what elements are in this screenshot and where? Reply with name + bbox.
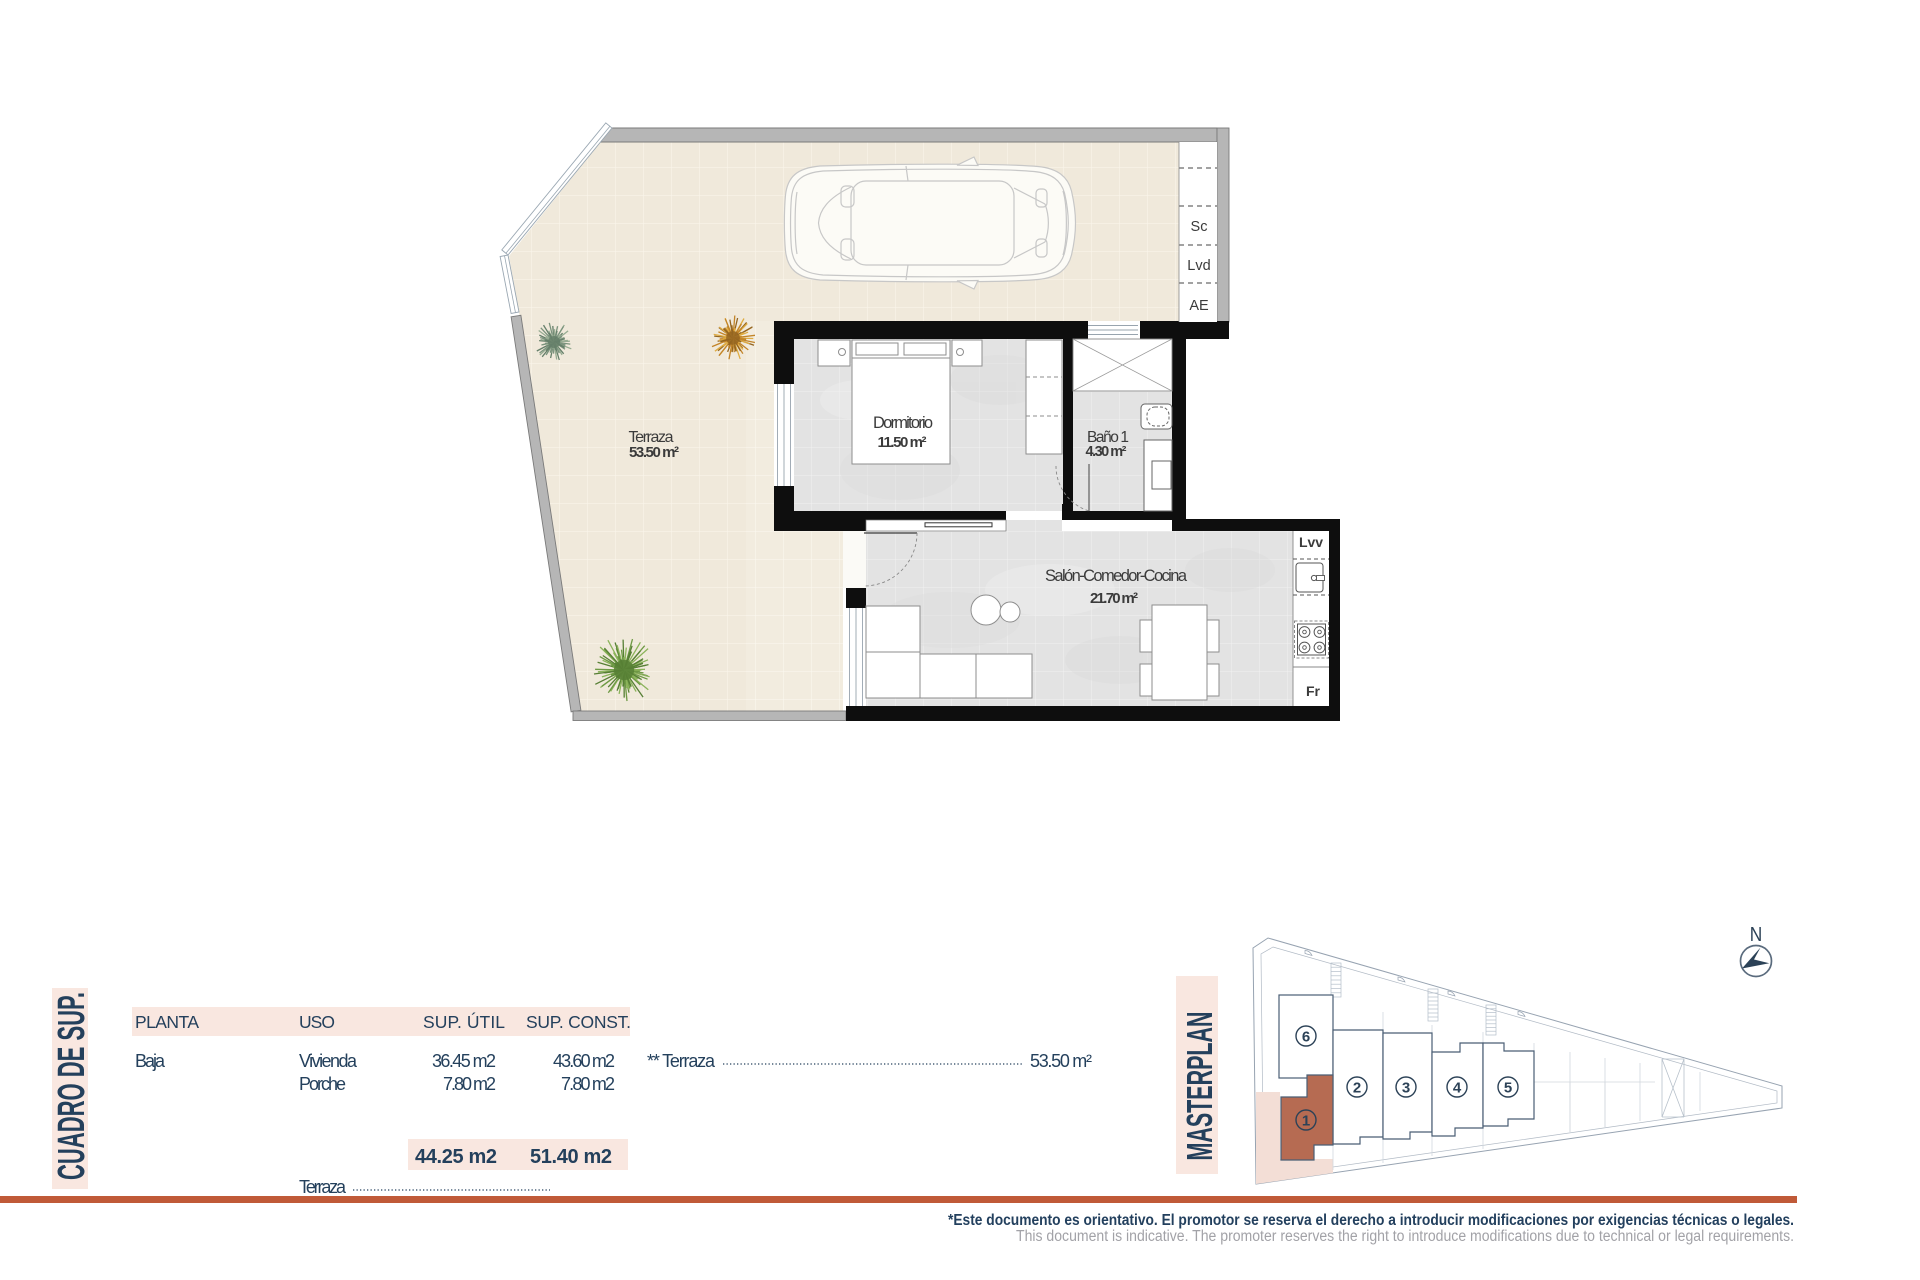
svg-text:AE: AE [1189, 298, 1209, 314]
svg-text:USO: USO [299, 1012, 335, 1032]
svg-text:Terraza: Terraza [299, 1177, 347, 1197]
svg-text:SUP. ÚTIL: SUP. ÚTIL [423, 1011, 505, 1032]
svg-text:4: 4 [1453, 1080, 1462, 1097]
svg-text:Baja: Baja [135, 1051, 166, 1071]
svg-text:51.40 m2: 51.40 m2 [530, 1146, 612, 1168]
svg-text:43.60 m2: 43.60 m2 [553, 1051, 615, 1071]
svg-text:5: 5 [1504, 1080, 1512, 1097]
svg-text:Lvv: Lvv [1299, 534, 1323, 550]
svg-text:1: 1 [1302, 1113, 1310, 1130]
svg-text:This document is indicative. T: This document is indicative. The promote… [1016, 1228, 1794, 1245]
svg-text:7.80 m2: 7.80 m2 [561, 1074, 615, 1094]
svg-text:4.30 m²: 4.30 m² [1086, 444, 1127, 460]
svg-text:53.50 m²: 53.50 m² [629, 444, 679, 461]
svg-text:Sc: Sc [1191, 219, 1208, 235]
svg-text:Fr: Fr [1306, 683, 1321, 699]
svg-text:53.50 m²: 53.50 m² [1030, 1051, 1092, 1071]
svg-text:11.50 m²: 11.50 m² [878, 434, 927, 451]
svg-text:*Este documento es orientativo: *Este documento es orientativo. El promo… [948, 1212, 1794, 1229]
svg-text:MASTERPLAN: MASTERPLAN [1179, 1012, 1220, 1161]
svg-text:Lvd: Lvd [1187, 258, 1210, 274]
svg-text:Vivienda: Vivienda [299, 1051, 358, 1071]
svg-text:21.70 m²: 21.70 m² [1090, 590, 1138, 607]
svg-text:CUADRO DE SUP.: CUADRO DE SUP. [51, 992, 93, 1180]
svg-text:7.80 m2: 7.80 m2 [443, 1074, 496, 1094]
svg-text:Dormitorio: Dormitorio [873, 414, 933, 432]
svg-text:PLANTA: PLANTA [135, 1012, 199, 1032]
svg-text:Porche: Porche [299, 1074, 346, 1094]
svg-text:SUP. CONST.: SUP. CONST. [526, 1012, 631, 1032]
svg-text:44.25 m2: 44.25 m2 [415, 1146, 497, 1168]
svg-text:3: 3 [1402, 1080, 1410, 1097]
svg-text:2: 2 [1353, 1080, 1361, 1097]
svg-text:6: 6 [1302, 1029, 1310, 1046]
svg-text:** Terraza: ** Terraza [647, 1051, 716, 1071]
svg-text:Salón-Comedor-Cocina: Salón-Comedor-Cocina [1045, 567, 1188, 585]
svg-text:36.45 m2: 36.45 m2 [432, 1051, 496, 1071]
svg-text:N: N [1750, 924, 1763, 946]
